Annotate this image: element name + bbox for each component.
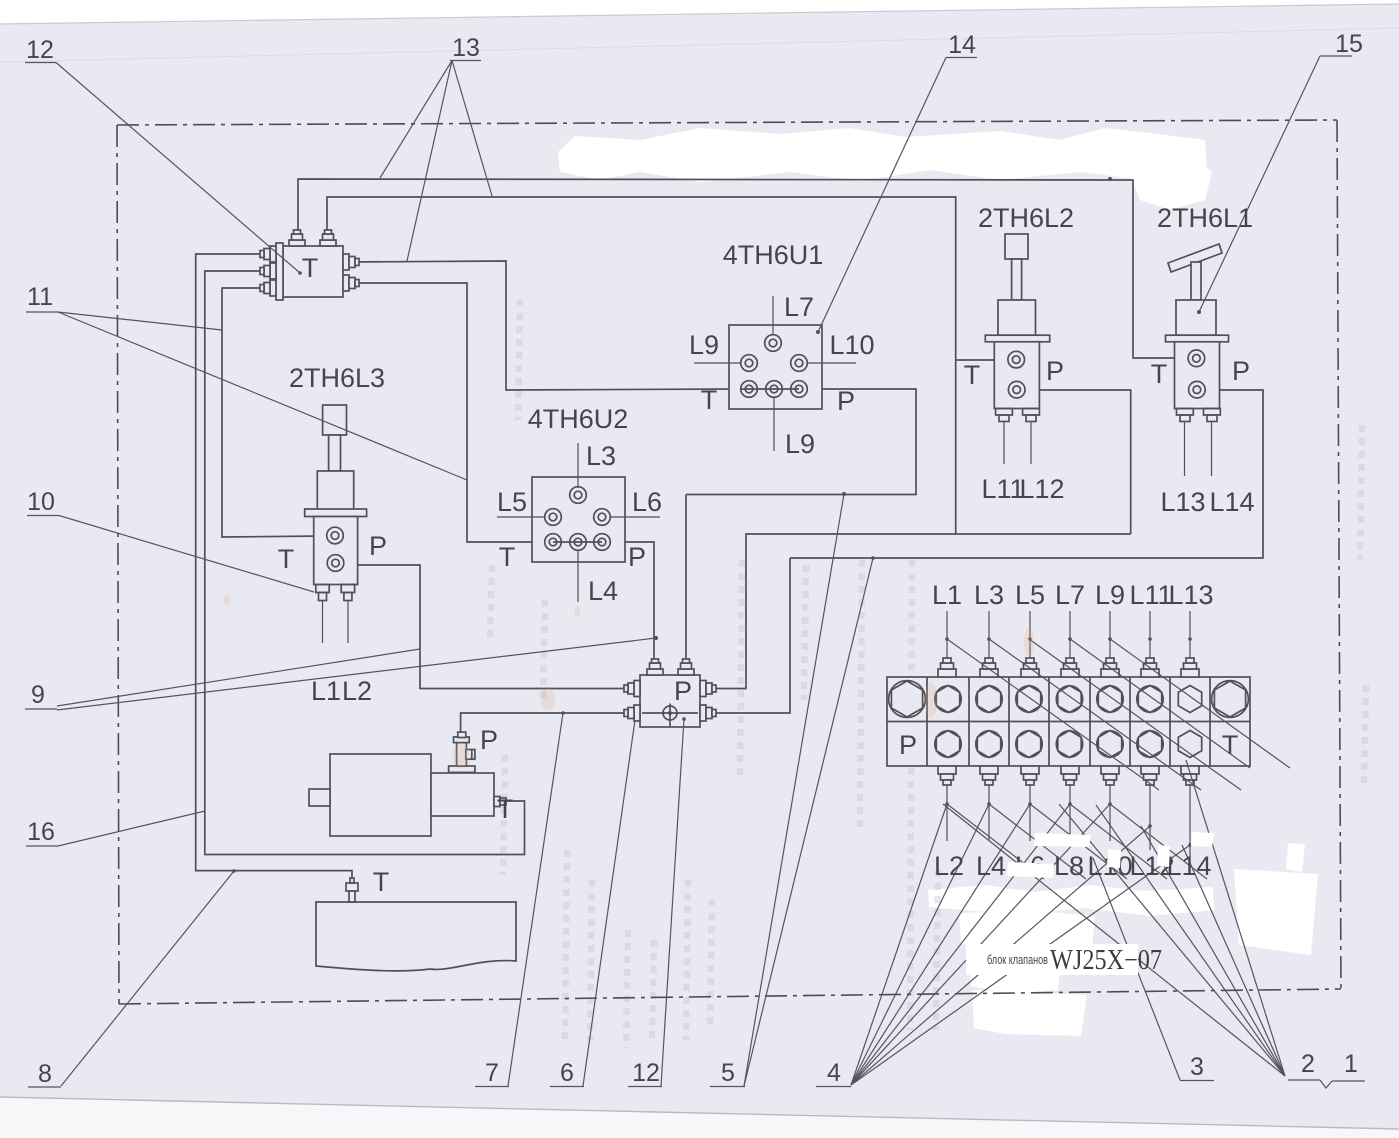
svg-text:L5: L5 xyxy=(497,487,527,517)
svg-text:L1: L1 xyxy=(932,580,962,610)
svg-text:L9: L9 xyxy=(785,429,815,459)
svg-text:L2: L2 xyxy=(342,676,372,706)
svg-text:L10: L10 xyxy=(829,330,874,360)
svg-text:P: P xyxy=(480,725,498,755)
svg-text:L6: L6 xyxy=(632,487,662,517)
svg-text:T: T xyxy=(373,867,390,897)
svg-text:L3: L3 xyxy=(586,441,616,471)
svg-text:11: 11 xyxy=(27,283,53,311)
svg-text:6: 6 xyxy=(560,1059,574,1087)
svg-text:L7: L7 xyxy=(1055,580,1085,610)
svg-text:P: P xyxy=(369,531,387,561)
svg-text:L2: L2 xyxy=(934,851,964,881)
svg-text:L14: L14 xyxy=(1166,851,1211,881)
svg-text:2TH6L2: 2TH6L2 xyxy=(978,203,1074,233)
svg-text:L4: L4 xyxy=(976,851,1006,881)
svg-text:2TH6L1: 2TH6L1 xyxy=(1157,203,1253,233)
svg-text:L11: L11 xyxy=(1129,580,1172,610)
svg-text:L11: L11 xyxy=(981,474,1024,504)
svg-text:1: 1 xyxy=(1344,1050,1358,1078)
svg-text:L5: L5 xyxy=(1015,580,1045,610)
svg-text:T: T xyxy=(964,360,981,390)
svg-text:7: 7 xyxy=(485,1059,499,1087)
svg-text:L12: L12 xyxy=(1019,474,1064,504)
svg-text:3: 3 xyxy=(1190,1053,1204,1081)
svg-text:8: 8 xyxy=(38,1060,52,1088)
svg-text:L14: L14 xyxy=(1209,487,1254,517)
svg-text:L13: L13 xyxy=(1160,487,1205,517)
svg-text:L8: L8 xyxy=(1054,851,1084,881)
svg-text:блок клапанов: блок клапанов xyxy=(987,952,1048,967)
svg-text:T: T xyxy=(497,794,514,824)
svg-text:4: 4 xyxy=(827,1059,841,1087)
svg-text:WJ25X−07: WJ25X−07 xyxy=(1050,945,1162,976)
svg-text:T: T xyxy=(499,542,516,572)
svg-text:L7: L7 xyxy=(784,292,814,322)
svg-text:5: 5 xyxy=(721,1059,735,1087)
svg-text:14: 14 xyxy=(948,31,976,59)
svg-text:10: 10 xyxy=(27,488,55,516)
svg-text:T: T xyxy=(302,253,319,283)
svg-text:2: 2 xyxy=(1301,1050,1315,1078)
svg-text:P: P xyxy=(628,542,646,572)
svg-text:P: P xyxy=(674,676,692,706)
svg-text:T: T xyxy=(701,385,718,415)
svg-text:L1: L1 xyxy=(311,676,341,706)
svg-text:16: 16 xyxy=(27,818,55,846)
svg-text:L4: L4 xyxy=(588,576,618,606)
svg-text:T: T xyxy=(1151,359,1168,389)
svg-text:13: 13 xyxy=(452,34,480,62)
svg-text:12: 12 xyxy=(632,1059,660,1087)
svg-text:P: P xyxy=(1232,356,1250,386)
svg-text:P: P xyxy=(837,386,855,416)
svg-text:15: 15 xyxy=(1335,30,1363,58)
svg-text:P: P xyxy=(1046,356,1064,386)
svg-text:9: 9 xyxy=(31,681,45,709)
svg-text:L9: L9 xyxy=(689,330,719,360)
svg-text:T: T xyxy=(1222,730,1239,760)
svg-text:4TH6U1: 4TH6U1 xyxy=(723,240,824,270)
svg-text:L3: L3 xyxy=(974,580,1004,610)
svg-text:2TH6L3: 2TH6L3 xyxy=(289,363,385,393)
svg-text:4TH6U2: 4TH6U2 xyxy=(528,404,629,434)
svg-text:T: T xyxy=(278,544,295,574)
svg-text:P: P xyxy=(899,730,917,760)
svg-text:L9: L9 xyxy=(1095,580,1125,610)
svg-text:L13: L13 xyxy=(1168,580,1213,610)
svg-text:12: 12 xyxy=(26,36,54,64)
